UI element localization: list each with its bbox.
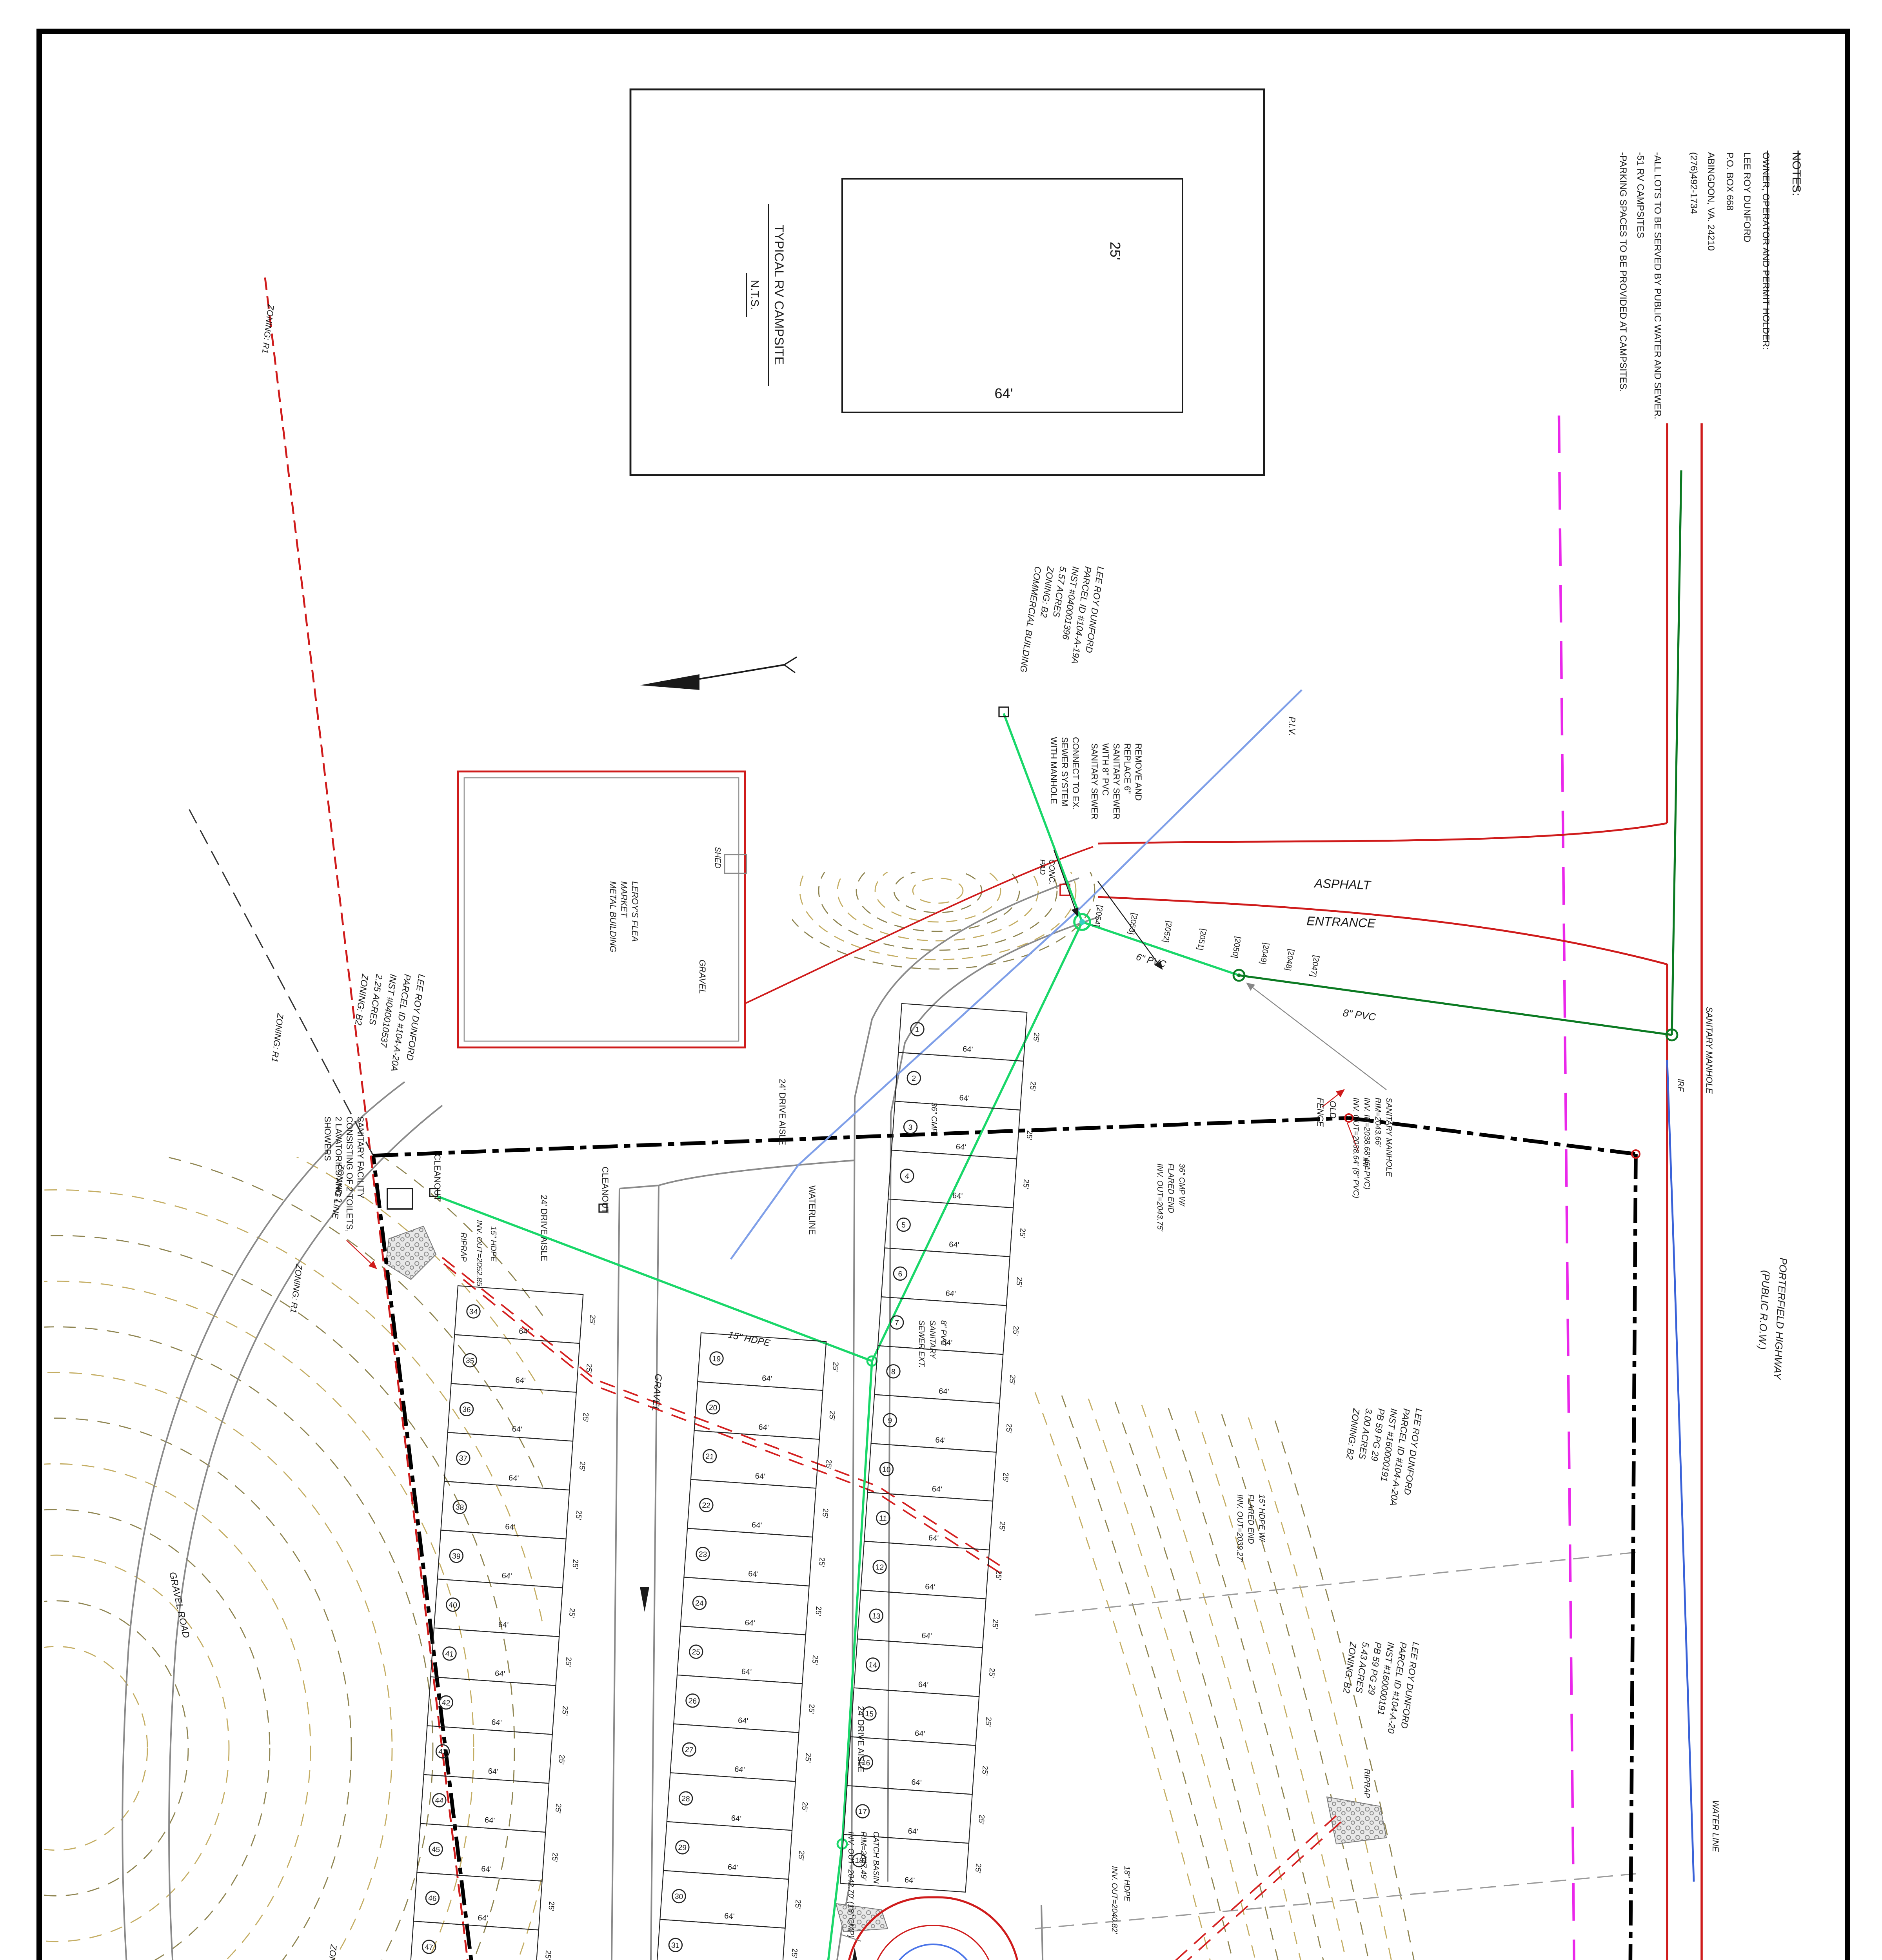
plan-label: OLD xyxy=(1328,1101,1338,1118)
plan-label: ASPHALT xyxy=(1313,876,1372,892)
lot-width-dim: 25' xyxy=(990,1619,999,1629)
lot-length-dim: 64' xyxy=(488,1767,499,1776)
lot-number: 22 xyxy=(702,1501,711,1510)
lot-length-dim: 64' xyxy=(925,1583,936,1592)
plan-label: P.I.V. xyxy=(1287,717,1297,736)
lot-width-dim: 25' xyxy=(543,1950,552,1960)
lot-number: 2 xyxy=(912,1074,916,1083)
lot-width-dim: 25' xyxy=(1028,1081,1037,1091)
plan-label: 36" CMP xyxy=(930,1102,938,1134)
plan-label: CONSISTING OF 2 TOILETS, xyxy=(345,1116,354,1232)
plan-label: IRF xyxy=(1361,1157,1370,1171)
lot-length-dim: 64' xyxy=(731,1814,742,1823)
plan-label: ABINGDON, VA. 24210 xyxy=(1706,152,1716,251)
lot-width-dim: 25' xyxy=(560,1706,569,1716)
plan-label: RIPRAP xyxy=(459,1232,468,1262)
lot-width-dim: 25' xyxy=(821,1508,830,1518)
plan-label: SANITARY SEWER xyxy=(1112,743,1121,819)
lot-number: 27 xyxy=(685,1746,694,1754)
lot-number: 46 xyxy=(428,1894,437,1903)
lot-width-dim: 25' xyxy=(581,1412,590,1423)
plan-label: PAD xyxy=(1038,859,1046,875)
lot-width-dim: 25' xyxy=(550,1852,559,1862)
plan-label: RIM=2047.49' xyxy=(859,1831,868,1881)
lot-length-dim: 64' xyxy=(515,1376,526,1385)
plan-label: INV. OUT=2038.64' (8" PVC) xyxy=(1352,1098,1360,1198)
lot-width-dim: 25' xyxy=(797,1850,806,1860)
plan-label: FLARED END xyxy=(1166,1163,1175,1213)
plan-label: 8" PVC xyxy=(939,1320,948,1346)
plan-label: NOTES: xyxy=(1790,152,1803,196)
lot-number: 47 xyxy=(425,1943,434,1952)
plan-label: 36" CMP W/ xyxy=(1177,1163,1186,1207)
plan-label: SANITARY FACILITY xyxy=(356,1116,365,1198)
plan-label: SANITARY xyxy=(928,1320,937,1359)
lot-length-dim: 64' xyxy=(908,1827,919,1836)
lot-number: 4 xyxy=(905,1172,909,1181)
lot-length-dim: 64' xyxy=(914,1729,925,1739)
lot-width-dim: 25' xyxy=(554,1803,563,1813)
plan-label: SANITARY MANHOLE xyxy=(1704,1007,1714,1094)
lot-length-dim: 64' xyxy=(494,1669,505,1679)
lot-width-dim: 25' xyxy=(831,1361,840,1372)
plan-label: WITH MANHOLE xyxy=(1049,737,1059,804)
lot-width-dim: 25' xyxy=(557,1755,566,1765)
lot-length-dim: 64' xyxy=(748,1570,759,1579)
plan-label: INV. OUT=2039.27' xyxy=(1235,1494,1244,1563)
lot-number: 40 xyxy=(449,1601,458,1610)
lot-width-dim: 25' xyxy=(814,1606,823,1616)
lot-number: 10 xyxy=(882,1465,891,1474)
plan-label: -PARKING SPACES TO BE PROVIDED AT CAMPSI… xyxy=(1618,152,1628,392)
lot-width-dim: 25' xyxy=(1021,1179,1030,1189)
lot-number: 28 xyxy=(681,1795,690,1803)
plan-label: GRAVEL xyxy=(698,960,707,994)
lot-width-dim: 25' xyxy=(578,1461,587,1471)
lot-length-dim: 64' xyxy=(938,1387,949,1396)
lot-length-dim: 64' xyxy=(918,1680,929,1690)
lot-length-dim: 64' xyxy=(949,1240,960,1250)
plan-label: CONC. xyxy=(1047,859,1056,884)
plan-label: 25' xyxy=(1107,242,1123,260)
plan-label: 18" HDPE xyxy=(1123,1866,1131,1902)
lot-width-dim: 25' xyxy=(567,1608,576,1618)
lot-width-dim: 25' xyxy=(800,1802,809,1812)
lot-width-dim: 25' xyxy=(790,1948,799,1958)
lot-number: 3 xyxy=(908,1123,913,1132)
lot-number: 21 xyxy=(705,1452,714,1461)
lot-width-dim: 25' xyxy=(803,1753,812,1763)
lot-width-dim: 25' xyxy=(987,1668,996,1678)
lot-width-dim: 25' xyxy=(977,1815,986,1825)
lot-number: 23 xyxy=(698,1550,707,1559)
lot-width-dim: 25' xyxy=(1004,1423,1013,1434)
lot-length-dim: 64' xyxy=(751,1521,762,1530)
lot-width-dim: 25' xyxy=(1018,1228,1027,1238)
lot-length-dim: 64' xyxy=(741,1667,752,1677)
lot-length-dim: 64' xyxy=(498,1620,509,1630)
lot-length-dim: 64' xyxy=(952,1191,963,1201)
plan-label: RIM=2043.66' xyxy=(1373,1098,1382,1147)
plan-label: WATERLINE xyxy=(807,1185,817,1235)
plan-label: MARKET xyxy=(619,881,629,918)
plan-label: FLARED END xyxy=(1246,1494,1255,1544)
lot-length-dim: 64' xyxy=(935,1436,946,1445)
lot-number: 45 xyxy=(431,1846,440,1854)
lot-width-dim: 25' xyxy=(574,1510,583,1520)
lot-length-dim: 64' xyxy=(761,1374,772,1383)
lot-number: 42 xyxy=(441,1699,451,1707)
plan-label: IRF xyxy=(1676,1079,1685,1092)
lot-number: 36 xyxy=(462,1405,471,1414)
lot-number: 31 xyxy=(671,1941,680,1950)
lot-number: 43 xyxy=(438,1748,447,1756)
lot-length-dim: 64' xyxy=(959,1094,970,1103)
lot-length-dim: 64' xyxy=(738,1716,748,1726)
lot-number: 29 xyxy=(678,1844,687,1852)
lot-number: 6 xyxy=(898,1270,903,1279)
plan-label: OWNER, OPERATOR AND PERMIT HOLDER: xyxy=(1760,152,1771,350)
lot-length-dim: 64' xyxy=(932,1485,943,1494)
lot-number: 7 xyxy=(894,1319,899,1327)
plan-label: INV. OUT=2043.75' xyxy=(1155,1163,1164,1232)
lot-length-dim: 64' xyxy=(512,1425,523,1434)
lot-number: 35 xyxy=(465,1357,474,1365)
lot-length-dim: 64' xyxy=(755,1472,766,1481)
lot-width-dim: 25' xyxy=(984,1717,993,1727)
lot-width-dim: 25' xyxy=(1014,1277,1023,1287)
lot-length-dim: 64' xyxy=(481,1865,492,1874)
lot-width-dim: 25' xyxy=(584,1363,593,1374)
lot-length-dim: 64' xyxy=(508,1474,519,1483)
lot-number: 25 xyxy=(692,1648,701,1657)
lot-number: 34 xyxy=(469,1308,478,1316)
plan-label: CATCH BASIN xyxy=(872,1831,880,1884)
lot-width-dim: 25' xyxy=(807,1704,816,1714)
lot-length-dim: 64' xyxy=(921,1631,932,1641)
lot-number: 44 xyxy=(435,1797,444,1805)
plan-label: WITH 8" PVC xyxy=(1101,743,1110,796)
plan-label: P.O. BOX 668 xyxy=(1724,152,1735,211)
plan-label: SHOWERS xyxy=(323,1116,332,1161)
lot-length-dim: 64' xyxy=(724,1912,735,1921)
lot-number: 13 xyxy=(872,1612,881,1621)
lot-number: 20 xyxy=(708,1404,718,1412)
plan-label: METAL BUILDING xyxy=(608,881,618,952)
plan-label: 64' xyxy=(995,385,1013,401)
plan-label: CONNECT TO EX. xyxy=(1071,737,1081,810)
lot-width-dim: 25' xyxy=(1025,1130,1034,1140)
plan-label: INV. IN=2038.68' (6" PVC) xyxy=(1362,1098,1371,1190)
lot-length-dim: 64' xyxy=(928,1534,939,1543)
plan-label: LEROY'S FLEA xyxy=(630,881,640,942)
lot-width-dim: 25' xyxy=(1011,1326,1020,1336)
lot-number: 39 xyxy=(452,1552,461,1561)
lot-width-dim: 25' xyxy=(588,1314,597,1325)
lot-number: 30 xyxy=(674,1893,683,1901)
lot-length-dim: 64' xyxy=(758,1423,769,1432)
plan-label: SANITARY SEWER xyxy=(1090,743,1099,819)
plan-label: SEWER EXT. xyxy=(917,1320,926,1368)
lot-width-dim: 25' xyxy=(994,1570,1003,1580)
lot-width-dim: 25' xyxy=(1032,1032,1041,1042)
lot-width-dim: 25' xyxy=(997,1521,1006,1531)
plan-label: 24' DRIVE AISLE xyxy=(778,1079,787,1145)
lot-number: 14 xyxy=(868,1661,877,1670)
lot-width-dim: 25' xyxy=(564,1657,573,1667)
plan-label: 15" HDPE W/ xyxy=(1257,1494,1266,1543)
plan-label: CLEANOUT xyxy=(600,1167,610,1214)
lot-width-dim: 25' xyxy=(570,1559,579,1569)
lot-width-dim: 25' xyxy=(824,1459,833,1470)
lot-number: 5 xyxy=(901,1221,906,1230)
lot-length-dim: 64' xyxy=(962,1045,973,1054)
lot-width-dim: 25' xyxy=(980,1766,989,1776)
plan-label: ENTRANCE xyxy=(1306,914,1376,930)
site-plan-sheet: 164'25'264'25'364'25'464'25'564'25'664'2… xyxy=(0,0,1882,1960)
lot-width-dim: 25' xyxy=(793,1899,802,1909)
lot-number: 26 xyxy=(688,1697,697,1706)
plan-label: INV. OUT=2052.85' xyxy=(475,1220,483,1288)
lot-number: 38 xyxy=(455,1503,464,1512)
lot-width-dim: 25' xyxy=(827,1410,836,1421)
plan-label: SEWER SYSTEM xyxy=(1060,737,1070,806)
lot-length-dim: 64' xyxy=(734,1765,745,1775)
lot-length-dim: 64' xyxy=(478,1913,489,1923)
lot-length-dim: 64' xyxy=(505,1523,516,1532)
lot-number: 17 xyxy=(858,1808,867,1816)
lot-length-dim: 64' xyxy=(518,1327,529,1336)
plan-label: 24' DRIVE AISLE xyxy=(856,1706,866,1772)
plan-label: -51 RV CAMPSITES xyxy=(1635,152,1646,238)
lot-width-dim: 25' xyxy=(1008,1374,1017,1385)
lot-number: 1 xyxy=(915,1025,919,1034)
plan-label: LEE ROY DUNFORD xyxy=(1742,152,1752,242)
lot-number: 11 xyxy=(879,1514,887,1523)
lot-length-dim: 64' xyxy=(491,1718,502,1728)
plan-label: SANITARY MANHOLE xyxy=(1384,1098,1393,1177)
lot-width-dim: 25' xyxy=(547,1901,556,1911)
lot-number: 12 xyxy=(875,1563,884,1572)
lot-number: 19 xyxy=(712,1355,721,1363)
lot-number: 37 xyxy=(459,1454,468,1463)
lot-number: 15 xyxy=(865,1710,874,1719)
paper xyxy=(0,0,1882,1960)
lot-length-dim: 64' xyxy=(904,1876,915,1885)
plan-label: CLEANOUT xyxy=(432,1154,442,1201)
plan-label: (276)492-1734 xyxy=(1688,152,1699,214)
lot-width-dim: 25' xyxy=(974,1863,983,1873)
lot-number: 9 xyxy=(888,1417,892,1425)
plan-label: 24' DRIVE AISLE xyxy=(539,1195,549,1261)
lot-length-dim: 64' xyxy=(945,1289,956,1299)
lot-length-dim: 64' xyxy=(484,1816,495,1825)
plan-label: REMOVE AND xyxy=(1134,743,1143,801)
plan-label: N.T.S. xyxy=(749,280,761,310)
lot-length-dim: 64' xyxy=(911,1778,922,1788)
lot-number: 8 xyxy=(891,1368,896,1376)
plan-label: RIPRAP xyxy=(1362,1769,1371,1798)
plan-label: TYPICAL RV CAMPSITE xyxy=(772,225,786,365)
lot-width-dim: 25' xyxy=(1001,1472,1010,1483)
plan-label: FENCE xyxy=(1315,1098,1325,1127)
plan-label: 15" HDPE xyxy=(489,1226,498,1262)
lot-number: 41 xyxy=(445,1650,454,1659)
plan-label: -ALL LOTS TO BE SERVED BY PUBLIC WATER A… xyxy=(1652,152,1663,419)
lot-number: 24 xyxy=(695,1599,704,1608)
plan-label: INV. OUT=2042.70' (18" CMP) xyxy=(847,1831,855,1938)
plan-label: SHED xyxy=(713,847,722,869)
lot-length-dim: 64' xyxy=(727,1863,738,1872)
plan-label: INV. OUT=2040.82' xyxy=(1110,1866,1119,1934)
lot-length-dim: 64' xyxy=(956,1143,966,1152)
lot-width-dim: 25' xyxy=(810,1655,819,1665)
lot-length-dim: 64' xyxy=(745,1619,756,1628)
lot-length-dim: 64' xyxy=(501,1572,512,1581)
plan-label: WATER LINE xyxy=(1711,1800,1720,1852)
plan-label: REPLACE 6" xyxy=(1123,743,1132,794)
lot-width-dim: 25' xyxy=(817,1557,826,1567)
